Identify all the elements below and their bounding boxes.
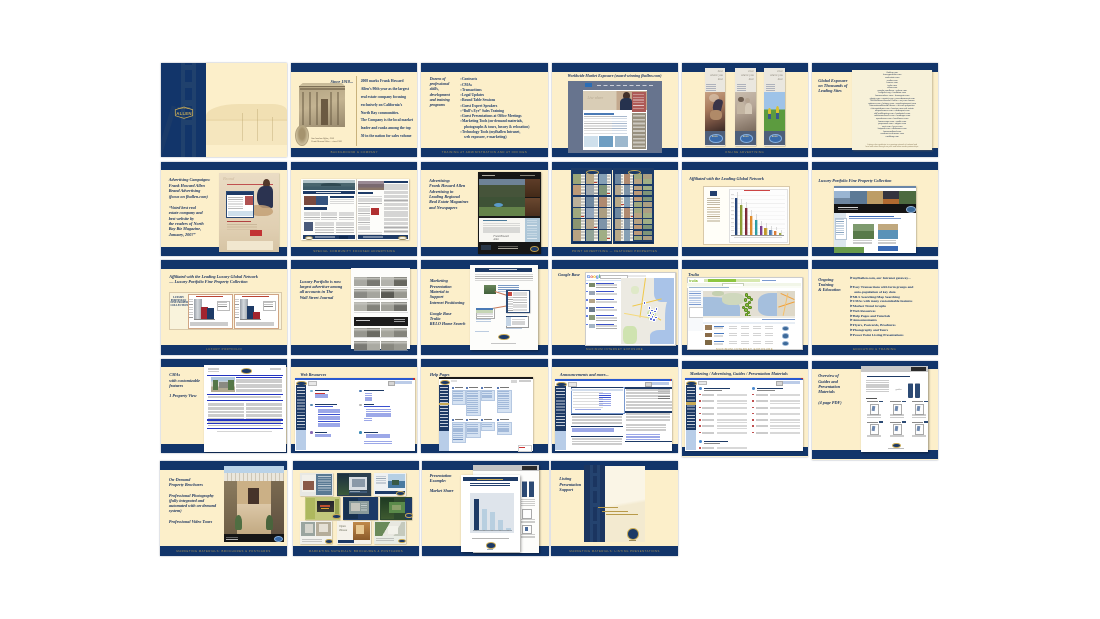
svg-text:ALLEN: ALLEN [176,111,191,116]
